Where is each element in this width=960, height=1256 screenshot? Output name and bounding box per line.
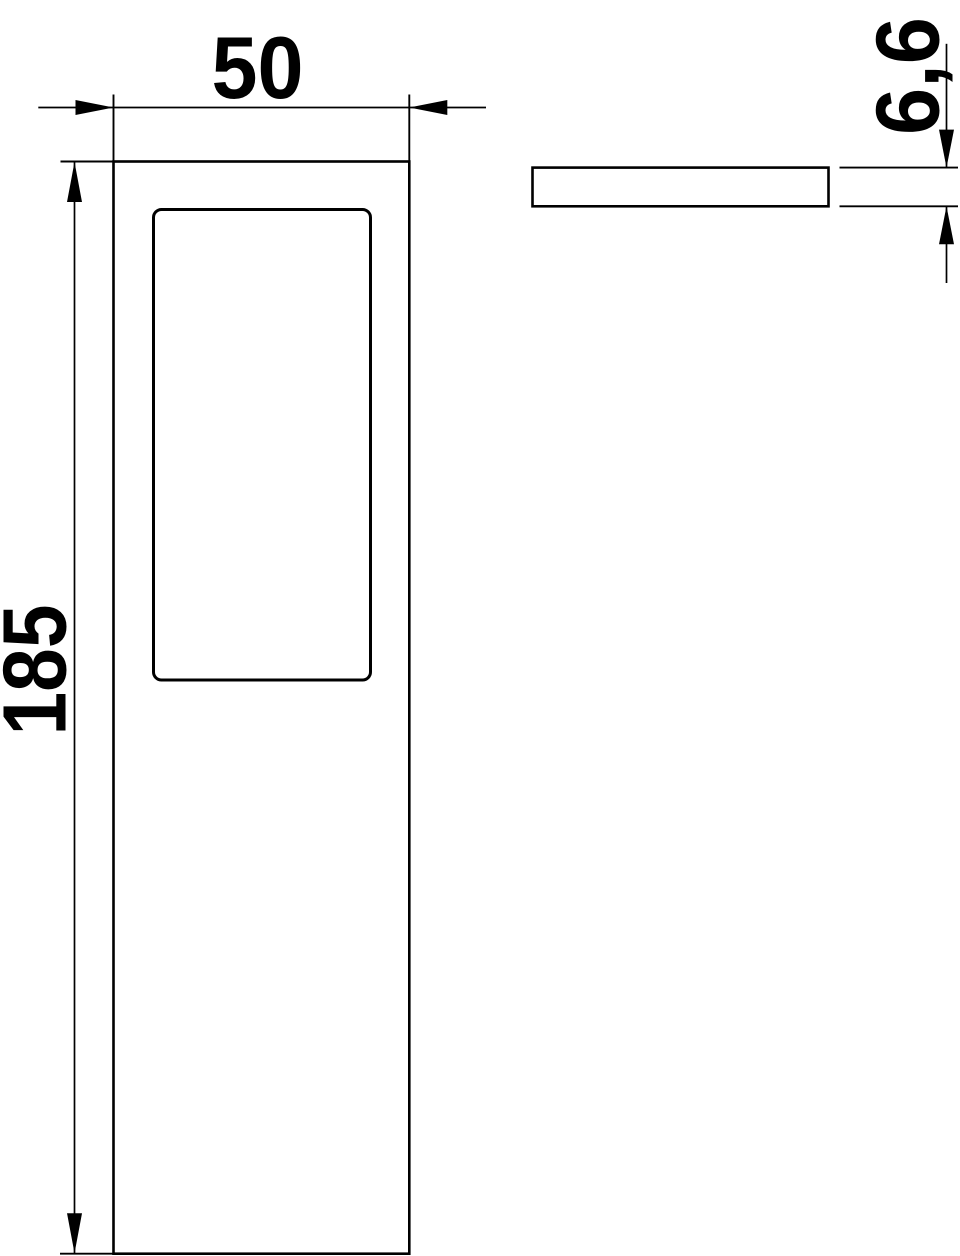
svg-text:185: 185 xyxy=(0,605,86,736)
svg-text:50: 50 xyxy=(212,18,304,117)
svg-text:6,6: 6,6 xyxy=(859,17,959,135)
